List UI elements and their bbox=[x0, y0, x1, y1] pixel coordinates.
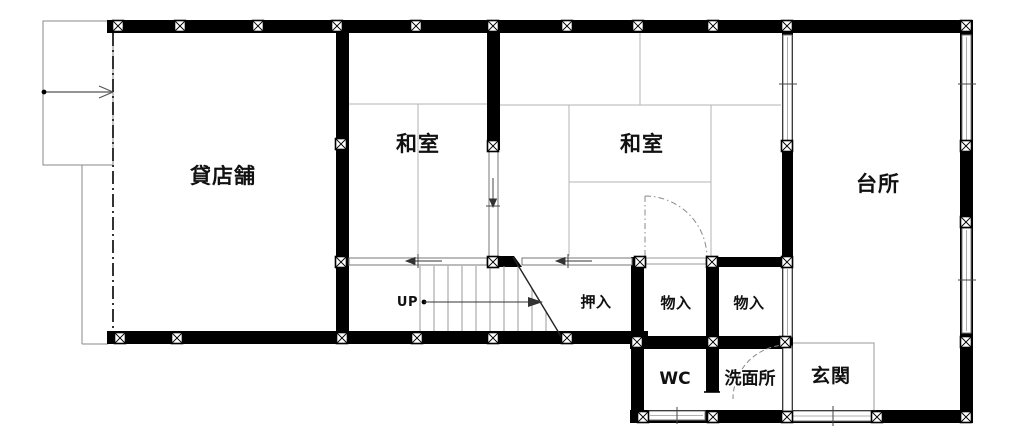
room-label-washroom: 洗面所 bbox=[725, 368, 776, 389]
pillar-marker bbox=[175, 21, 186, 32]
pillar-marker bbox=[336, 257, 347, 268]
pillar-marker bbox=[780, 337, 791, 348]
entry-arrow-dot bbox=[42, 90, 47, 95]
stair-up-arrow bbox=[422, 297, 543, 307]
slide-arrows bbox=[406, 178, 592, 265]
pillar-marker bbox=[708, 412, 719, 423]
pillar-marker bbox=[336, 139, 347, 150]
room-label-washitsu-left: 和室 bbox=[396, 132, 440, 156]
room-label-closet: 押入 bbox=[580, 293, 611, 311]
pillar-marker bbox=[872, 412, 883, 423]
pillar-marker bbox=[961, 21, 972, 32]
wall-storage2-top bbox=[718, 257, 781, 267]
pillar-marker bbox=[961, 217, 972, 228]
pillar-markers bbox=[113, 21, 972, 423]
pillar-marker bbox=[412, 333, 423, 344]
wall-storage-washroom-divider bbox=[706, 257, 719, 392]
pillar-marker bbox=[782, 21, 793, 32]
pillar-marker bbox=[961, 412, 972, 423]
room-label-storage-right: 物入 bbox=[733, 294, 764, 312]
sliding-door-closet bbox=[522, 258, 632, 265]
pillar-marker bbox=[633, 21, 644, 32]
wall-store-east bbox=[336, 33, 349, 344]
opening-tracks bbox=[650, 37, 967, 416]
wall-north bbox=[107, 20, 973, 33]
pillar-marker bbox=[253, 21, 264, 32]
stair-break-line bbox=[513, 257, 562, 338]
pillar-marker bbox=[638, 412, 649, 423]
pillar-marker bbox=[635, 257, 646, 268]
wall-washitsu-partition bbox=[487, 33, 500, 150]
pillar-marker bbox=[782, 141, 793, 152]
openings bbox=[349, 35, 971, 421]
walls bbox=[107, 20, 973, 423]
pillar-marker bbox=[562, 21, 573, 32]
pillar-marker bbox=[411, 21, 422, 32]
floor-plan-svg: 貸店舗 和室 和室 台所 押入 物入 物入 WC 洗面所 玄関 UP bbox=[0, 0, 1024, 439]
floor-plan-canvas: 貸店舗 和室 和室 台所 押入 物入 物入 WC 洗面所 玄関 UP bbox=[0, 0, 1024, 439]
pillar-marker bbox=[708, 21, 719, 32]
pillar-marker bbox=[782, 412, 793, 423]
pillar-marker bbox=[488, 257, 499, 268]
pillar-marker bbox=[961, 141, 972, 152]
pillar-marker bbox=[707, 257, 718, 268]
room-label-kitchen: 台所 bbox=[856, 172, 900, 196]
pillar-marker bbox=[961, 337, 972, 348]
pillar-marker bbox=[632, 337, 643, 348]
storage1-door-arc bbox=[645, 196, 707, 258]
pillar-marker bbox=[562, 333, 573, 344]
pillar-marker bbox=[488, 21, 499, 32]
pillar-marker bbox=[172, 333, 183, 344]
pillar-marker bbox=[115, 333, 126, 344]
room-label-storage-left: 物入 bbox=[660, 294, 691, 312]
pillar-marker bbox=[488, 141, 499, 152]
partition-washroom-entrance bbox=[783, 346, 792, 411]
exterior-bay-outline bbox=[43, 21, 113, 165]
room-label-washitsu-right: 和室 bbox=[620, 132, 664, 156]
room-label-entrance: 玄関 bbox=[811, 364, 851, 387]
stairs bbox=[420, 266, 546, 331]
opening-ticks bbox=[418, 84, 976, 426]
pillar-marker bbox=[488, 333, 499, 344]
exterior-annotations bbox=[43, 21, 113, 344]
entry-arrow bbox=[42, 86, 113, 98]
pillar-marker bbox=[332, 21, 343, 32]
storage1-door-line bbox=[646, 258, 706, 264]
pillar-marker bbox=[113, 21, 124, 32]
room-label-wc: WC bbox=[659, 369, 690, 389]
stairs-up-label: UP bbox=[397, 295, 418, 310]
room-label-store: 貸店舗 bbox=[189, 164, 256, 188]
pillar-marker bbox=[782, 257, 793, 268]
pillar-marker bbox=[708, 337, 719, 348]
pillar-marker bbox=[337, 333, 348, 344]
